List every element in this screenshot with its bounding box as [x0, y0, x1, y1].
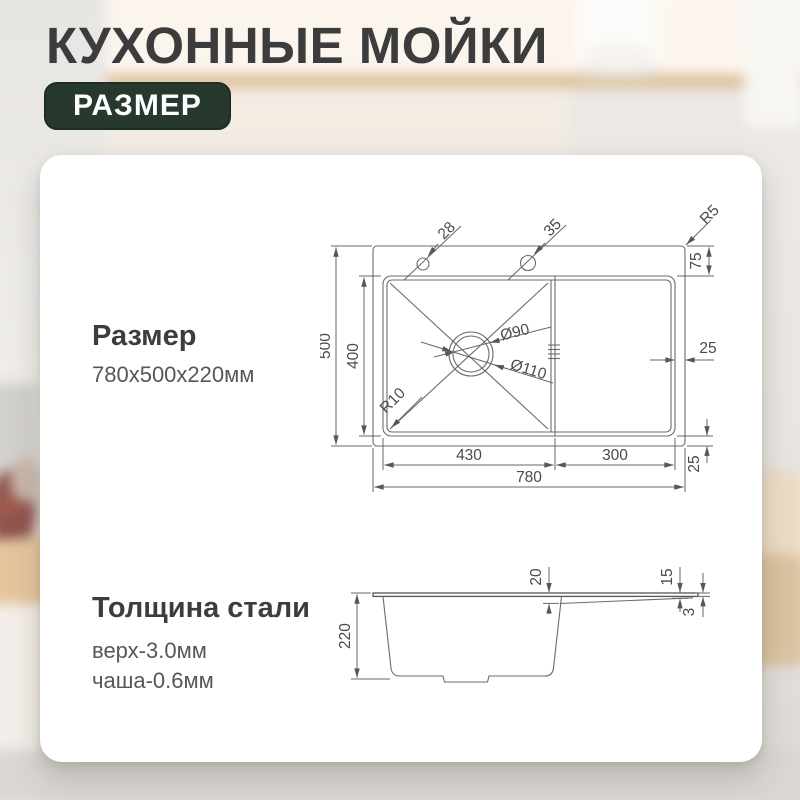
page-title: КУХОННЫЕ МОЙКИ [46, 16, 548, 75]
size-heading: Размер [92, 320, 254, 353]
dim-hole-35: 35 [541, 216, 565, 240]
dim-bowl-430: 430 [456, 447, 482, 464]
top-view-drawing: 28 35 R5 R10 Ø90 Ø110 500 400 75 430 300… [320, 195, 752, 507]
dim-bowl-400: 400 [345, 343, 362, 369]
dim-drainboard-300: 300 [602, 447, 628, 464]
dim-deck-75: 75 [688, 252, 705, 269]
infographic-root: КУХОННЫЕ МОЙКИ РАЗМЕР Размер 780x500x220… [0, 0, 800, 800]
thickness-top-value: верх-3.0мм [92, 637, 310, 665]
dim-steel-3: 3 [681, 608, 698, 617]
dim-drop-15: 15 [659, 568, 676, 585]
dim-r5: R5 [697, 202, 723, 228]
side-view-drawing: 220 20 15 3 [330, 545, 740, 705]
dim-height-500: 500 [320, 333, 334, 359]
dim-drain-110: Ø110 [508, 356, 548, 383]
size-section: Размер 780x500x220мм [92, 320, 254, 388]
dim-margin-right-25: 25 [699, 340, 716, 357]
thickness-bowl-value: чаша-0.6мм [92, 667, 310, 695]
size-badge: РАЗМЕР [44, 82, 231, 130]
thickness-heading: Толщина стали [92, 592, 310, 625]
dim-total-780: 780 [516, 469, 542, 486]
thickness-section: Толщина стали верх-3.0мм чаша-0.6мм [92, 592, 310, 695]
dim-hole-28: 28 [435, 219, 459, 243]
dim-drop-20: 20 [528, 568, 545, 586]
size-value: 780x500x220мм [92, 362, 254, 388]
faucet-hole-small [417, 258, 429, 270]
dim-margin-bottom-25: 25 [686, 455, 703, 472]
top-rim-profile [373, 593, 698, 596]
faucet-hole-large [521, 256, 536, 271]
dim-r10: R10 [377, 384, 409, 416]
dim-depth-220: 220 [337, 623, 354, 649]
bowl-profile [383, 597, 562, 683]
